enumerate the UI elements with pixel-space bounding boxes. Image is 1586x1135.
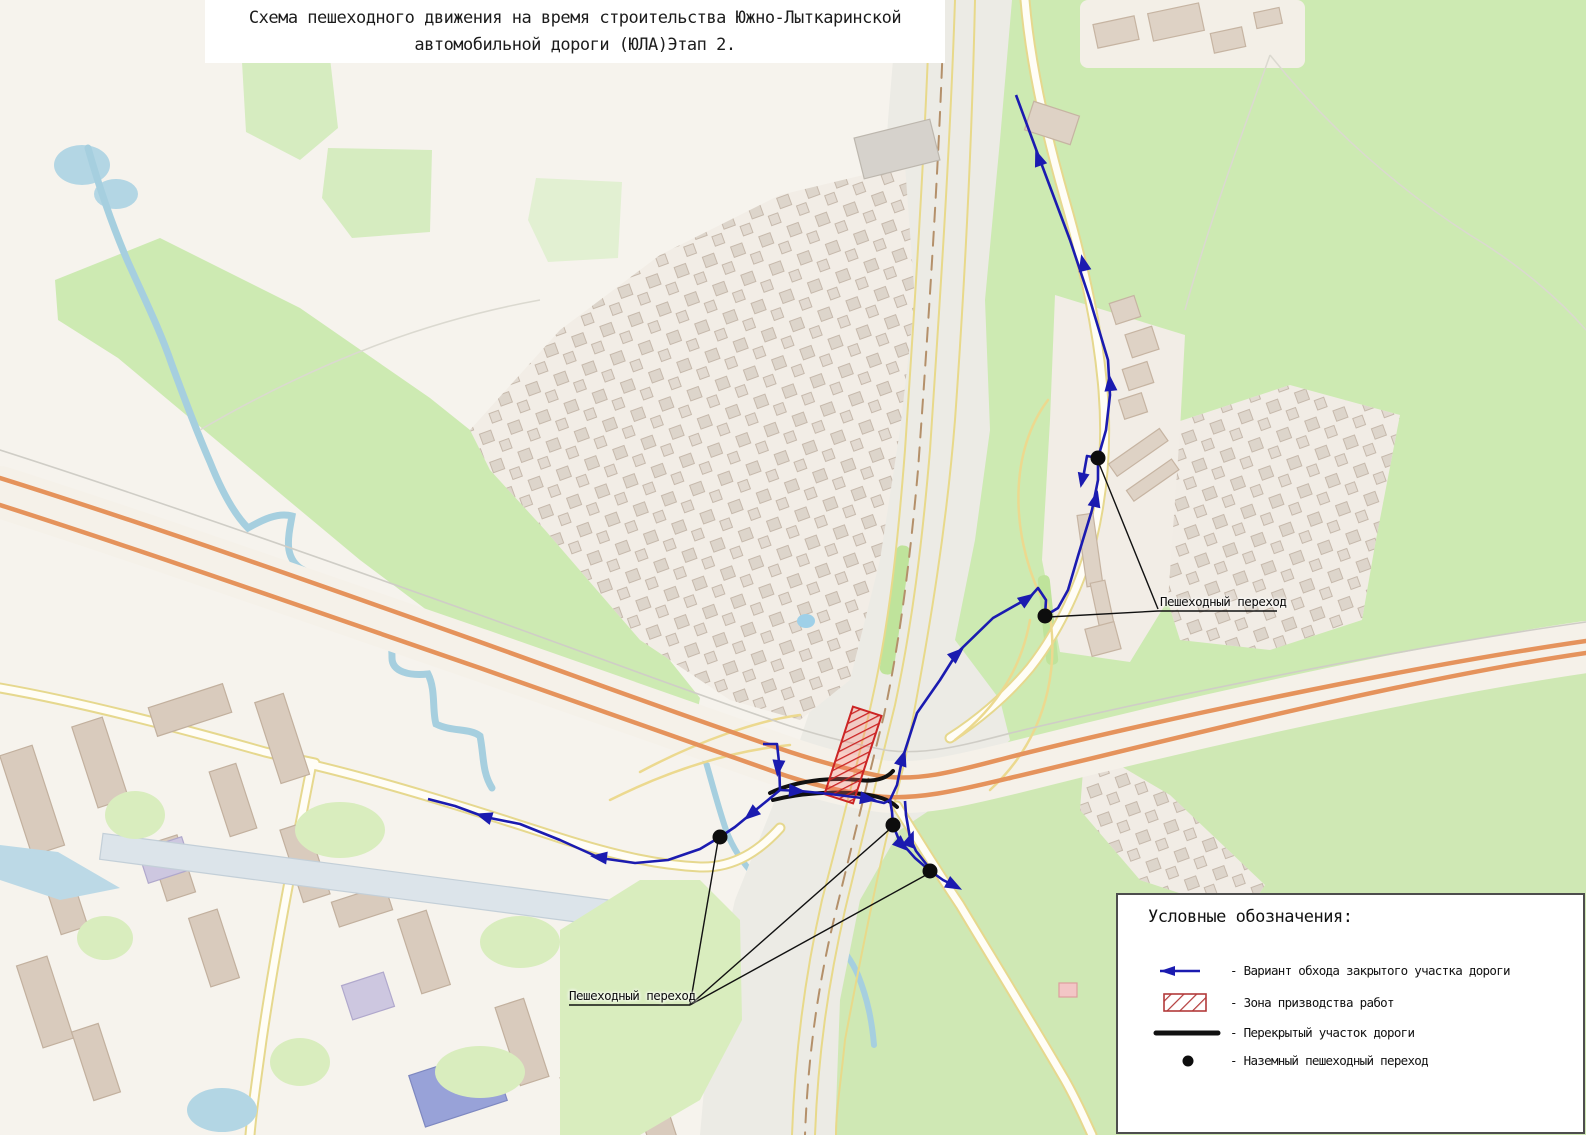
crossing-label-left: Пешеходный переход <box>569 988 695 1003</box>
legend-label-closedroad: - Перекрытый участок дороги <box>1230 1025 1414 1040</box>
legend-item-detour: - Вариант обхода закрытого участка дорог… <box>1118 959 1583 983</box>
crossing-dot <box>1038 609 1053 624</box>
map-title-line1: Схема пешеходного движения на время стро… <box>249 5 901 31</box>
legend-item-workzone: - Зона призводства работ <box>1118 991 1583 1015</box>
map-title-line2: автомобильной дороги (ЮЛА)Этап 2. <box>414 32 735 58</box>
legend-label-workzone: - Зона призводства работ <box>1230 995 1394 1010</box>
legend-title: Условные обозначения: <box>1148 907 1352 927</box>
crossing-dot <box>713 830 728 845</box>
crossing-dot <box>1091 451 1106 466</box>
legend-box: Условные обозначения: - Вариант обхода з… <box>1116 893 1585 1134</box>
map-title: Схема пешеходного движения на время стро… <box>205 0 945 63</box>
crossing-dot <box>923 864 938 879</box>
crossing-label-right: Пешеходный переход <box>1160 594 1286 609</box>
legend-label-detour: - Вариант обхода закрытого участка дорог… <box>1230 963 1510 978</box>
crossing-dot <box>886 818 901 833</box>
work-zone <box>825 707 882 804</box>
legend-item-closedroad: - Перекрытый участок дороги <box>1118 1021 1583 1045</box>
pedestrian-scheme-map: Схема пешеходного движения на время стро… <box>0 0 1586 1135</box>
legend-item-crossing: - Наземный пешеходный переход <box>1118 1049 1583 1073</box>
legend-label-crossing: - Наземный пешеходный переход <box>1230 1053 1428 1068</box>
crossing-dots <box>713 451 1106 879</box>
route-west <box>428 790 780 863</box>
detour-routes <box>428 95 1110 886</box>
route-north <box>890 95 1110 800</box>
